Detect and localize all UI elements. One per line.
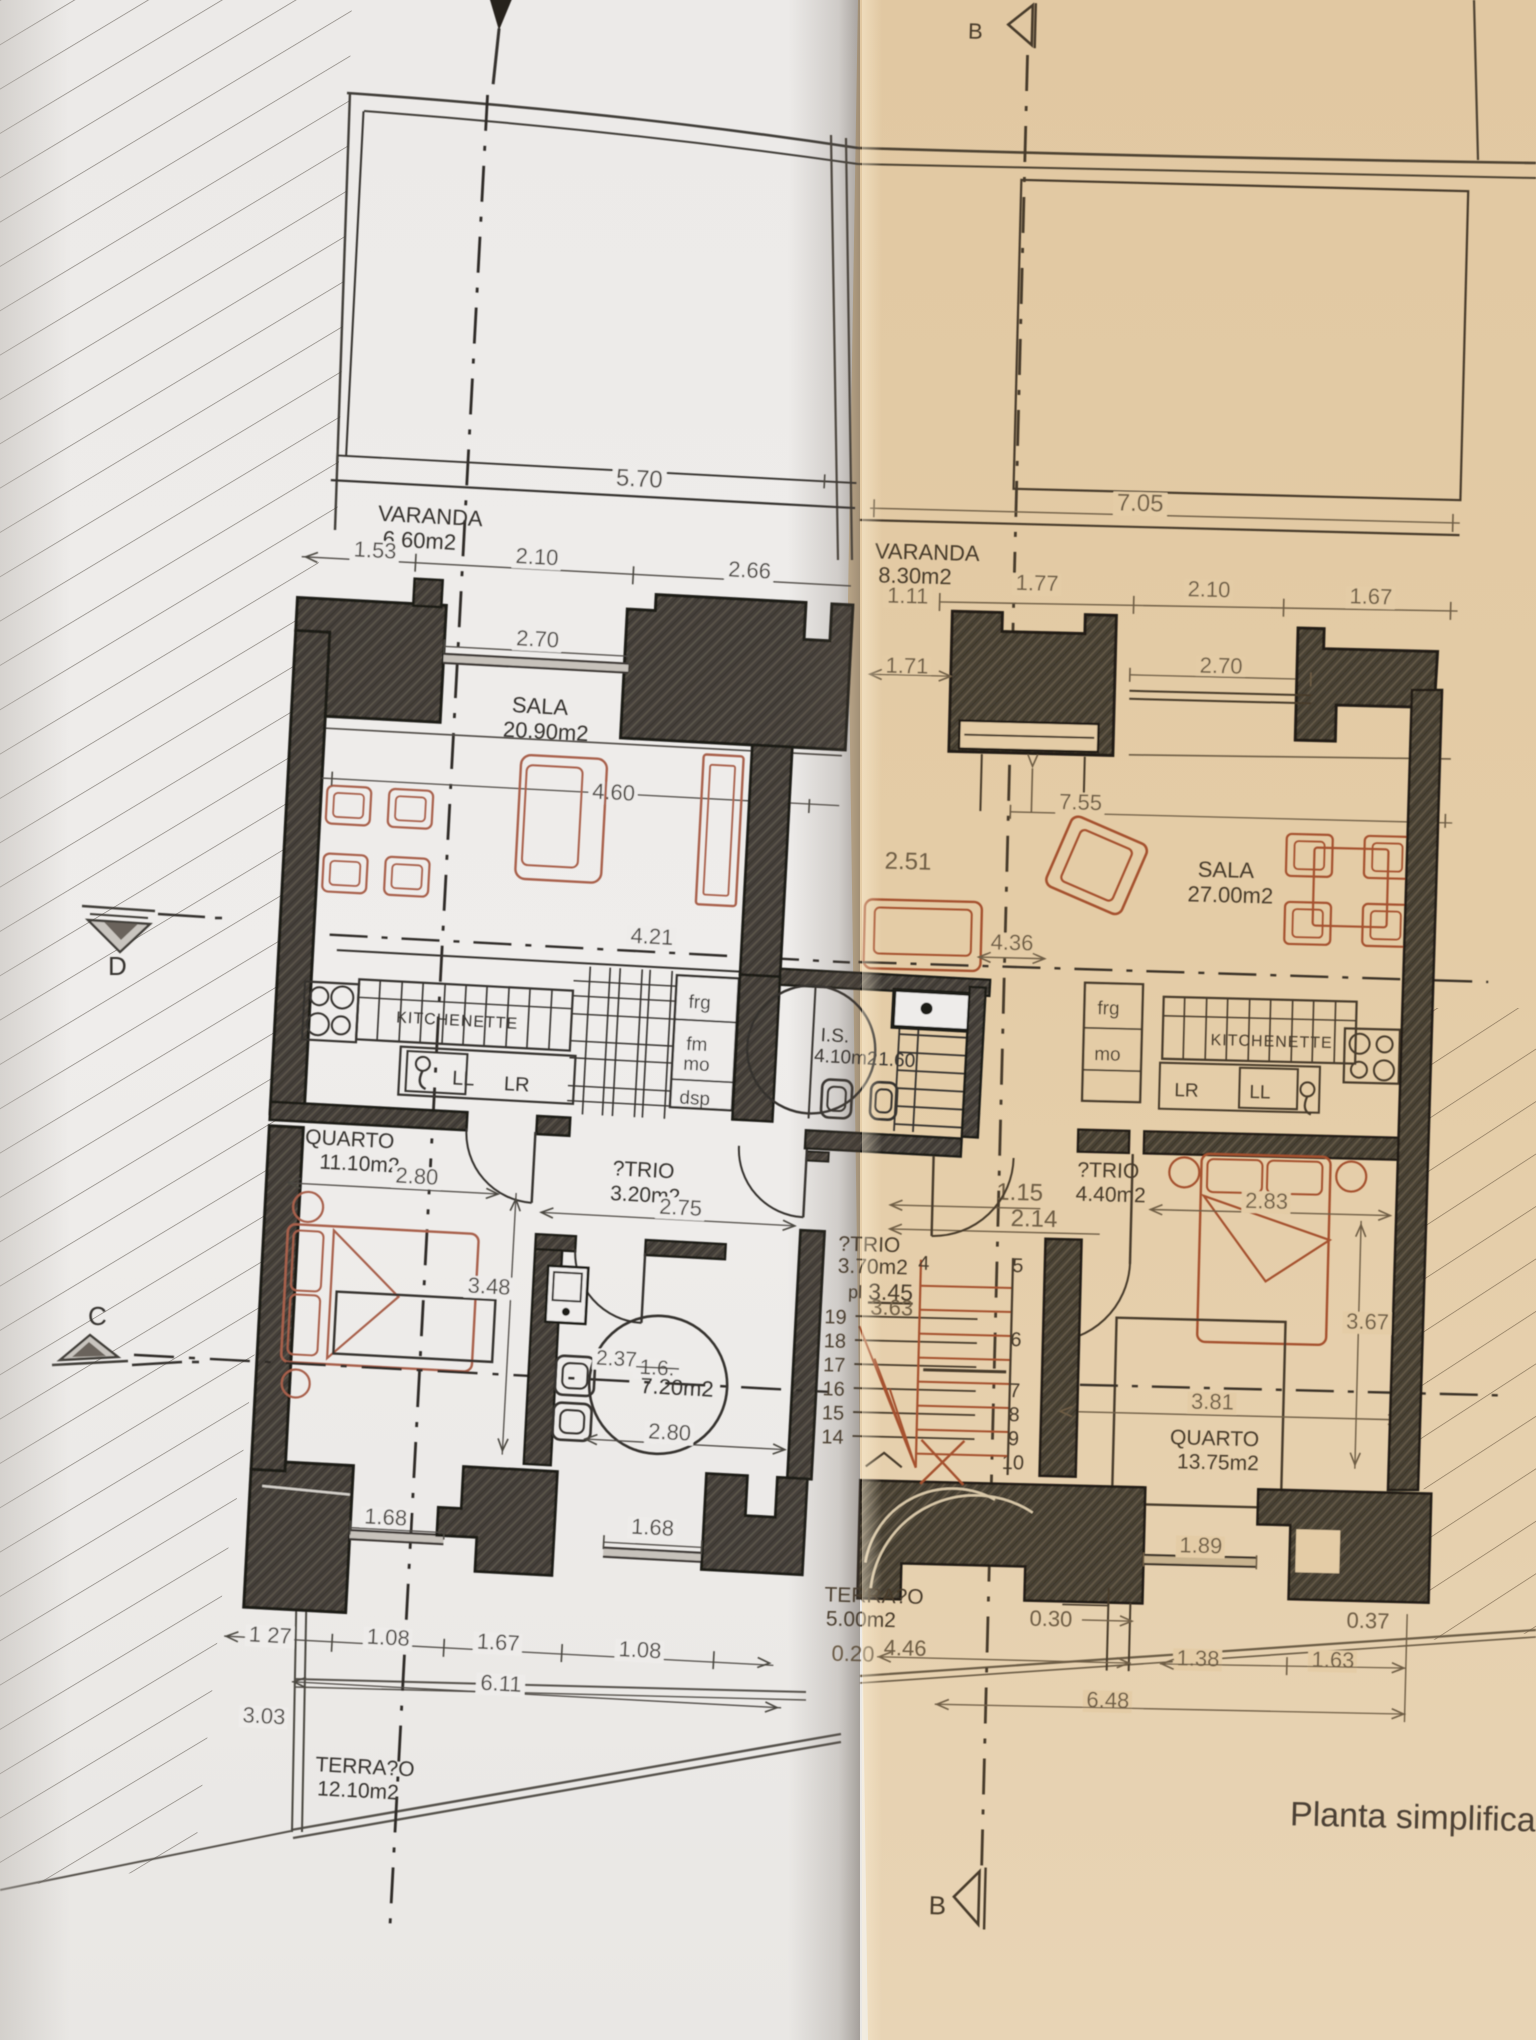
svg-text:6.48: 6.48: [1086, 1687, 1129, 1713]
svg-text:0.37: 0.37: [1346, 1608, 1389, 1634]
svg-text:1 27: 1 27: [248, 1621, 292, 1648]
svg-text:?TRIO: ?TRIO: [1077, 1159, 1139, 1184]
svg-text:3.03: 3.03: [242, 1702, 286, 1729]
svg-text:2.75: 2.75: [659, 1194, 703, 1221]
svg-text:LL: LL: [1249, 1082, 1271, 1104]
svg-text:1.63: 1.63: [1311, 1647, 1354, 1673]
svg-text:?TRIO: ?TRIO: [612, 1157, 675, 1183]
svg-text:1.77: 1.77: [1015, 570, 1058, 596]
svg-text:3.67: 3.67: [1346, 1308, 1389, 1334]
svg-text:2.70: 2.70: [1199, 653, 1242, 679]
svg-text:B: B: [928, 1890, 946, 1920]
svg-text:D: D: [108, 951, 127, 981]
svg-text:1.53: 1.53: [353, 536, 397, 563]
svg-text:mo: mo: [1094, 1044, 1121, 1066]
svg-text:1.67: 1.67: [1349, 583, 1392, 609]
svg-text:7.05: 7.05: [1117, 489, 1164, 517]
svg-text:2.10: 2.10: [515, 543, 559, 570]
svg-text:11.10m2: 11.10m2: [319, 1150, 400, 1177]
svg-text:frg: frg: [688, 992, 711, 1014]
svg-text:B: B: [968, 19, 983, 44]
svg-text:mo: mo: [683, 1054, 710, 1076]
svg-text:1.08: 1.08: [618, 1636, 662, 1663]
svg-text:12.10m2: 12.10m2: [317, 1777, 400, 1804]
svg-text:4.60: 4.60: [592, 778, 636, 805]
svg-text:SALA: SALA: [1198, 857, 1255, 883]
svg-text:2.10: 2.10: [1187, 576, 1230, 602]
svg-text:2.83: 2.83: [1245, 1188, 1288, 1214]
svg-text:20.90m2: 20.90m2: [502, 717, 589, 747]
svg-text:2.70: 2.70: [516, 625, 560, 652]
svg-text:5.70: 5.70: [615, 464, 663, 493]
svg-text:fm: fm: [686, 1034, 708, 1056]
svg-text:dsp: dsp: [679, 1088, 711, 1111]
svg-text:3.48: 3.48: [467, 1273, 511, 1300]
svg-text:13.75m2: 13.75m2: [1177, 1450, 1259, 1475]
svg-text:4.21: 4.21: [630, 923, 674, 950]
svg-text:7.55: 7.55: [1059, 789, 1102, 815]
svg-text:2.80: 2.80: [648, 1418, 692, 1445]
svg-text:27.00m2: 27.00m2: [1187, 881, 1273, 908]
svg-text:1.89: 1.89: [1179, 1532, 1222, 1558]
svg-text:2.80: 2.80: [395, 1163, 439, 1190]
svg-text:LR: LR: [503, 1073, 530, 1096]
svg-text:SALA: SALA: [511, 692, 569, 720]
svg-text:7.20m2: 7.20m2: [640, 1373, 715, 1402]
svg-text:4.40m2: 4.40m2: [1075, 1183, 1146, 1208]
svg-text:4: 4: [918, 1253, 930, 1275]
svg-text:1.68: 1.68: [631, 1514, 675, 1541]
svg-text:6.11: 6.11: [480, 1670, 522, 1697]
svg-text:LR: LR: [1174, 1080, 1199, 1102]
svg-text:3.81: 3.81: [1191, 1389, 1234, 1415]
svg-text:QUARTO: QUARTO: [305, 1126, 395, 1154]
svg-text:1.11: 1.11: [887, 583, 929, 609]
svg-text:1.15: 1.15: [996, 1179, 1043, 1207]
svg-text:1.68: 1.68: [364, 1503, 408, 1530]
svg-text:KITCHENETTE: KITCHENETTE: [1210, 1032, 1333, 1052]
svg-text:QUARTO: QUARTO: [1170, 1426, 1260, 1451]
svg-text:1.67: 1.67: [476, 1629, 520, 1656]
svg-text:1.38: 1.38: [1176, 1645, 1219, 1671]
svg-text:2.51: 2.51: [884, 848, 931, 876]
svg-text:2.37: 2.37: [595, 1346, 637, 1371]
svg-text:C: C: [88, 1301, 107, 1331]
svg-text:2.66: 2.66: [728, 556, 772, 583]
svg-text:frg: frg: [1097, 998, 1120, 1020]
svg-text:1.08: 1.08: [366, 1624, 410, 1651]
svg-text:4.36: 4.36: [990, 929, 1033, 955]
svg-text:LL: LL: [452, 1067, 475, 1090]
svg-text:0.30: 0.30: [1029, 1606, 1072, 1632]
